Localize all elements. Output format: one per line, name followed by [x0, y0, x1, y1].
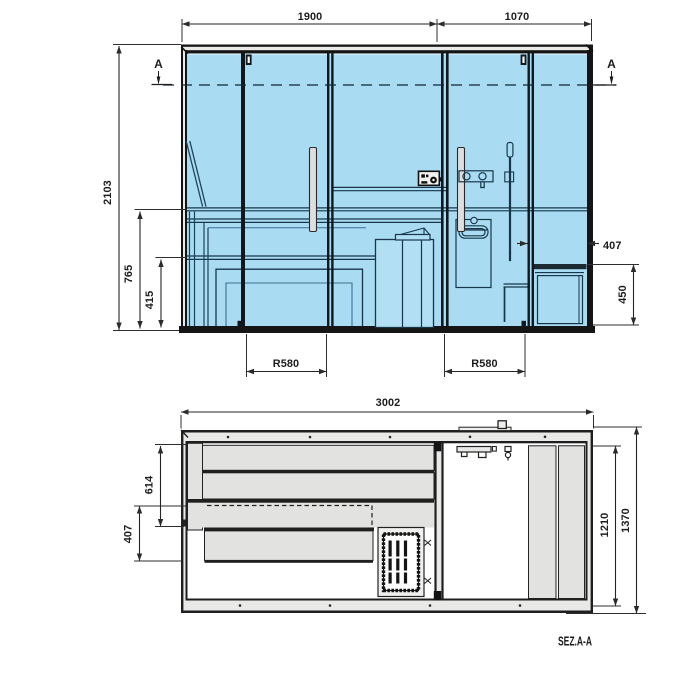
svg-text:R580: R580: [471, 358, 497, 370]
svg-text:1070: 1070: [505, 11, 530, 23]
svg-text:1900: 1900: [298, 11, 323, 23]
svg-text:765: 765: [123, 265, 135, 283]
svg-text:R580: R580: [273, 358, 299, 370]
svg-text:407: 407: [603, 240, 621, 252]
svg-text:614: 614: [144, 476, 156, 494]
svg-text:1210: 1210: [599, 513, 611, 538]
svg-text:415: 415: [144, 291, 156, 309]
svg-text:407: 407: [123, 525, 135, 543]
svg-text:3002: 3002: [376, 397, 401, 409]
svg-text:1370: 1370: [620, 508, 632, 533]
svg-text:2103: 2103: [102, 180, 114, 205]
svg-text:A: A: [154, 57, 163, 71]
svg-text:SEZ.A-A: SEZ.A-A: [558, 634, 592, 649]
svg-text:A: A: [607, 57, 616, 71]
svg-text:450: 450: [617, 285, 629, 303]
